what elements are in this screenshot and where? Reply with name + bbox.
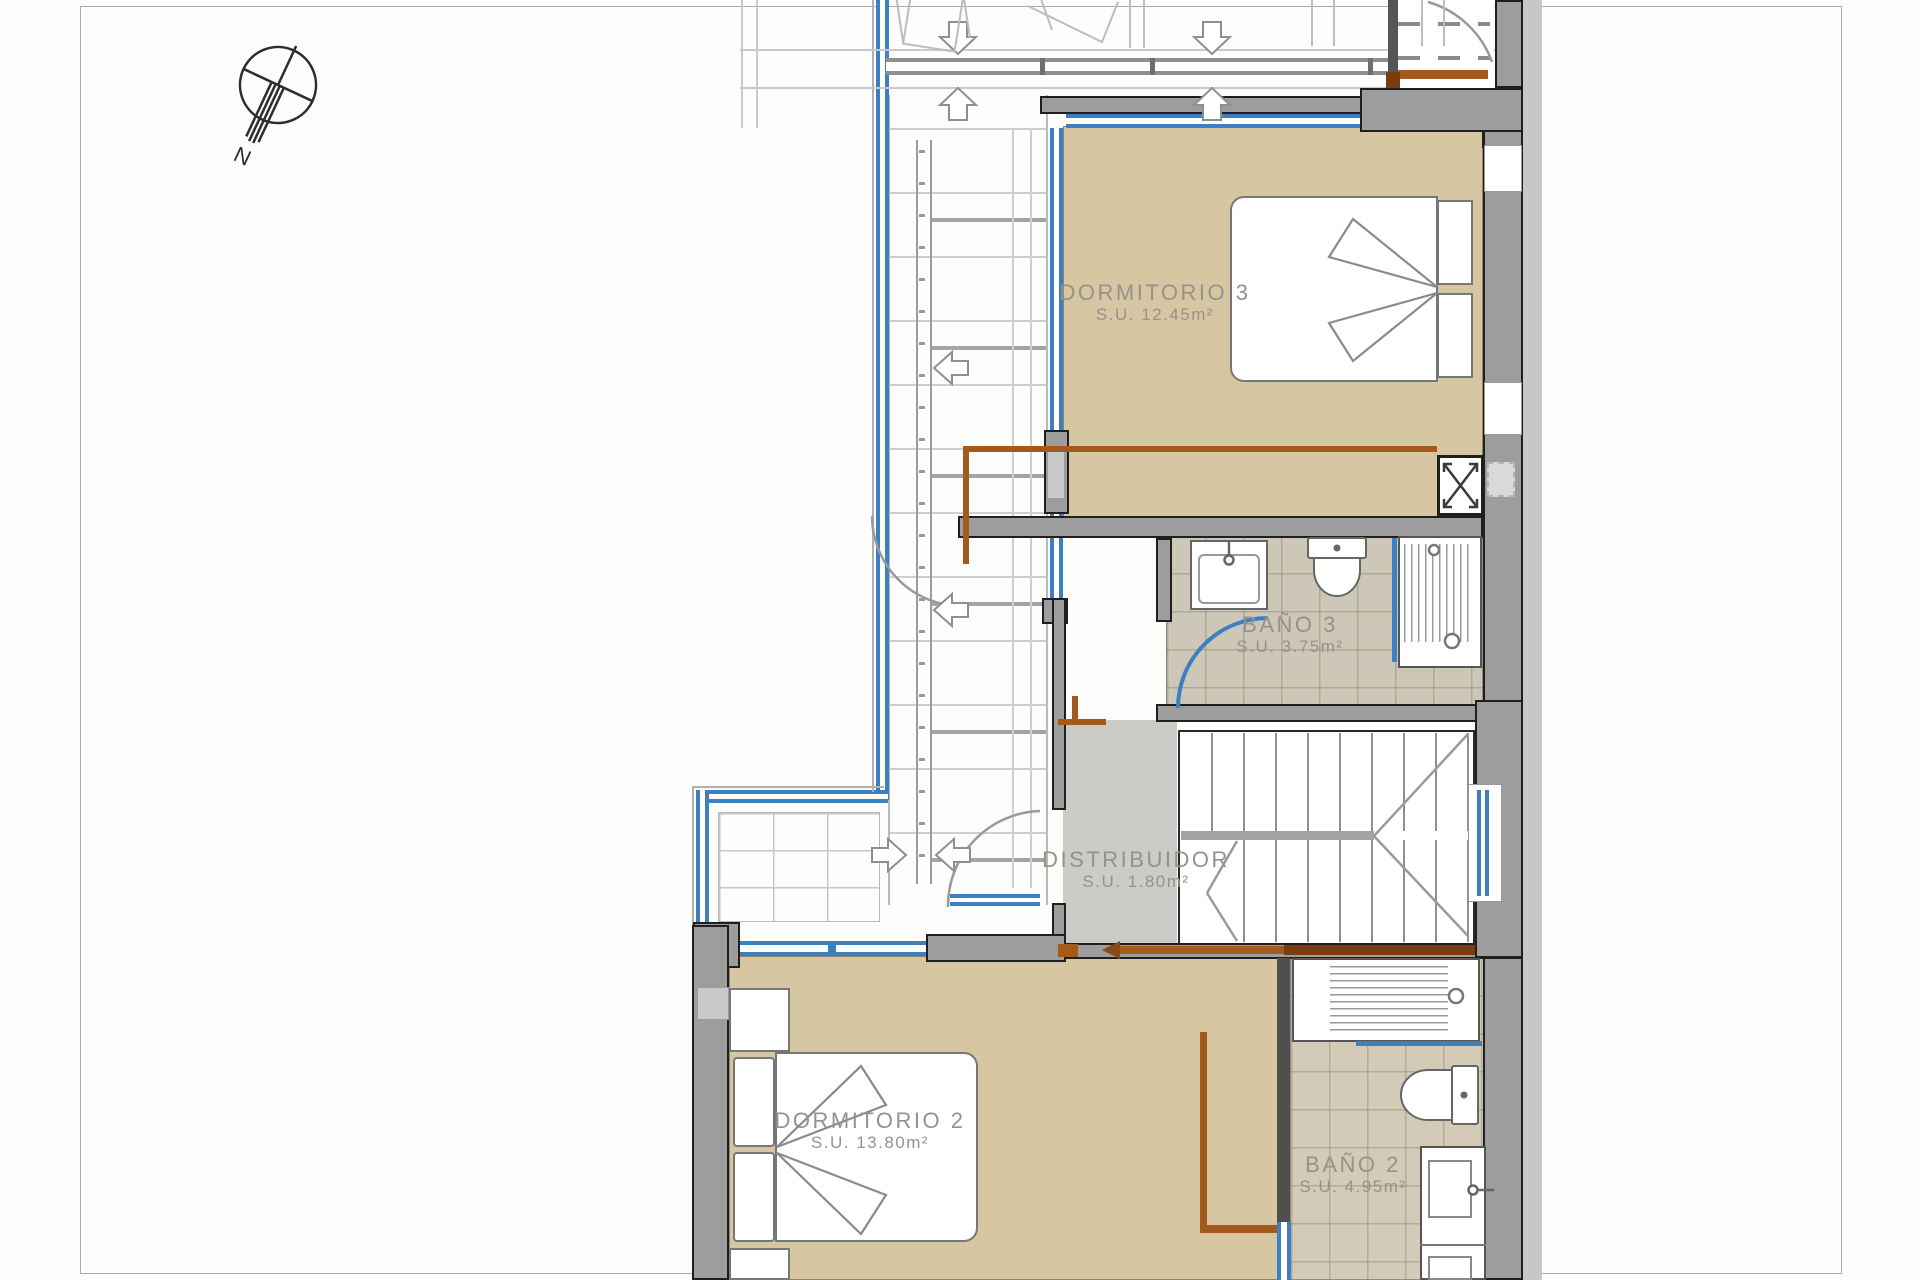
room-area: S.U. 3.75m²: [1140, 637, 1440, 657]
room-area: S.U. 4.95m²: [1203, 1177, 1503, 1197]
blanket-fan: [1329, 293, 1437, 361]
arrow-right-icon: [872, 839, 906, 871]
room-label-dormitorio-2: DORMITORIO 2 S.U. 13.80m²: [720, 1108, 1020, 1154]
blanket-fan: [1329, 219, 1437, 287]
stair-direction-lines: [1207, 734, 1468, 941]
room-label-dormitorio-3: DORMITORIO 3 S.U. 12.45m²: [1005, 280, 1305, 326]
room-label-bano-3: BAÑO 3 S.U. 3.75m²: [1140, 612, 1440, 658]
room-area: S.U. 1.80m²: [986, 872, 1286, 892]
toilet-bano-2: [1401, 1066, 1478, 1124]
room-name: DORMITORIO 3: [1005, 280, 1305, 305]
room-name: DISTRIBUIDOR: [986, 847, 1286, 872]
blanket-fan: [777, 1153, 886, 1234]
door-arc: [872, 516, 962, 606]
shaft-x-icon: [1444, 464, 1477, 507]
compass-north-icon: N: [205, 30, 331, 184]
arrow-up-icon: [1194, 88, 1230, 120]
flow-arrows: [872, 22, 1230, 871]
floor-plan-canvas: N: [0, 0, 1920, 1280]
arrow-left-icon: [934, 352, 968, 384]
room-label-bano-2: BAÑO 2 S.U. 4.95m²: [1203, 1152, 1503, 1198]
arrow-left-icon: [936, 839, 970, 871]
room-name: DORMITORIO 2: [720, 1108, 1020, 1133]
room-label-distribuidor: DISTRIBUIDOR S.U. 1.80m²: [986, 847, 1286, 893]
linework-overlay: N: [0, 0, 1920, 1280]
bed-blanket-fans: [777, 219, 1437, 1234]
drain-icon: [1445, 634, 1459, 648]
arrow-up-icon: [940, 88, 976, 120]
arrow-down-icon: [1194, 22, 1230, 54]
drain-icon: [1449, 989, 1463, 1003]
arrow-left-icon: [934, 594, 968, 626]
faucet-icon: [1225, 556, 1234, 565]
door-arc: [1428, 2, 1492, 62]
room-name: BAÑO 3: [1140, 612, 1440, 637]
room-area: S.U. 12.45m²: [1005, 305, 1305, 325]
drain-icon: [1429, 545, 1439, 555]
door-arcs: [872, 2, 1492, 907]
toilet-bano-3: [1308, 538, 1366, 596]
room-name: BAÑO 2: [1203, 1152, 1503, 1177]
room-area: S.U. 13.80m²: [720, 1133, 1020, 1153]
pipe-arrowhead: [1102, 941, 1120, 959]
faint-furniture-sketch: [896, 0, 1444, 52]
compass-north-label: N: [230, 141, 255, 170]
